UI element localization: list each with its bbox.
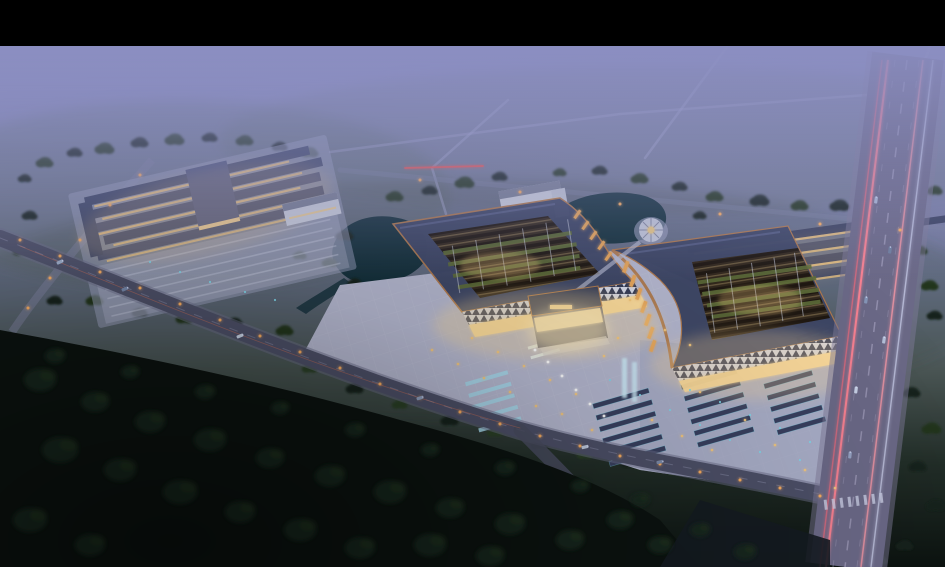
rendering-canvas xyxy=(0,0,945,567)
letterbox-bar xyxy=(0,0,945,46)
aerial-rendering xyxy=(0,0,945,567)
fog-overlay xyxy=(0,46,945,280)
